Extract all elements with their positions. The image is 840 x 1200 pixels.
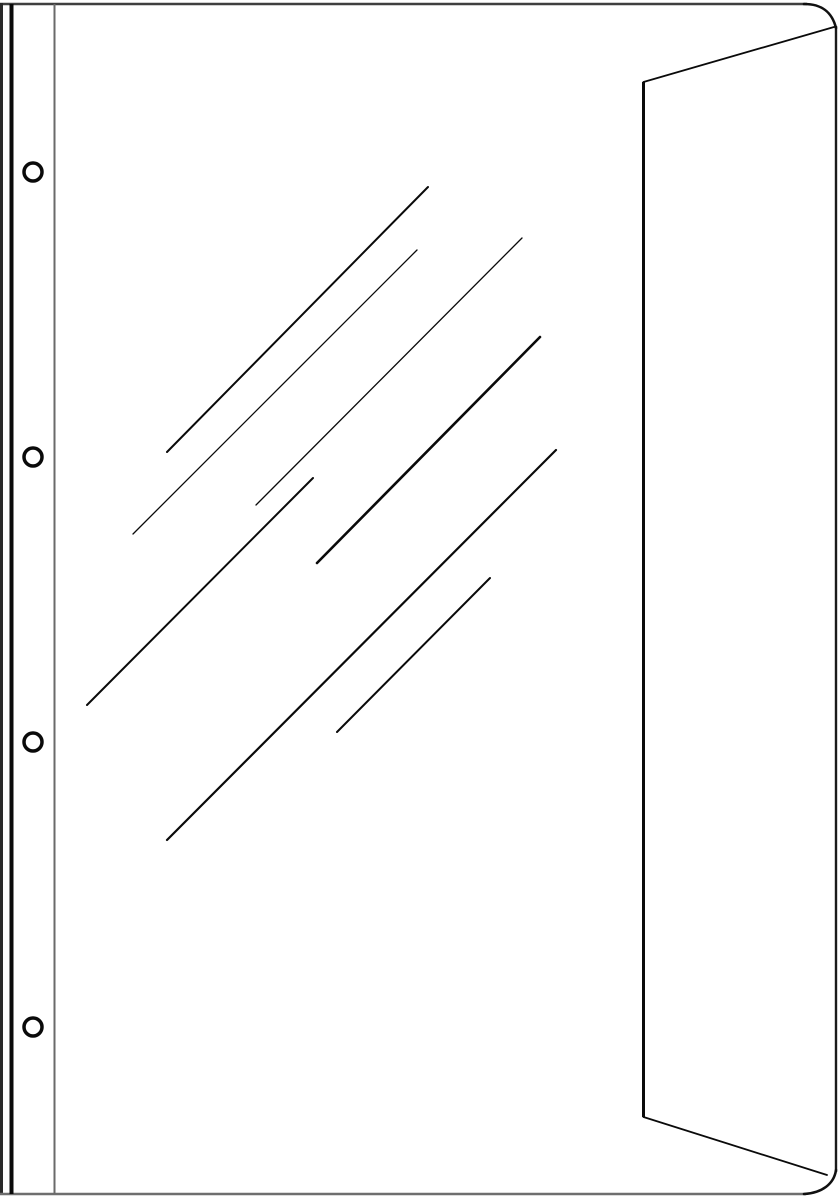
shine-lines-group [87, 187, 556, 840]
shine-line-4 [317, 337, 540, 563]
shine-line-6 [167, 450, 556, 840]
shine-line-5 [87, 478, 313, 705]
punch-hole [24, 163, 42, 181]
shine-line-1 [167, 187, 428, 452]
top-right-corner-curve [804, 4, 836, 28]
flap-top-diagonal [644, 27, 835, 82]
flap-bottom-diagonal [644, 1117, 828, 1175]
sheet-protector-illustration [0, 0, 840, 1200]
sheet-outline-group [0, 3, 836, 1195]
punch-hole [24, 733, 42, 751]
punch-holes-group [24, 163, 42, 1036]
punch-hole [24, 448, 42, 466]
punched-pocket-drawing [0, 0, 840, 1200]
punch-hole [24, 1018, 42, 1036]
shine-line-2 [133, 250, 417, 534]
shine-line-7 [337, 578, 490, 732]
